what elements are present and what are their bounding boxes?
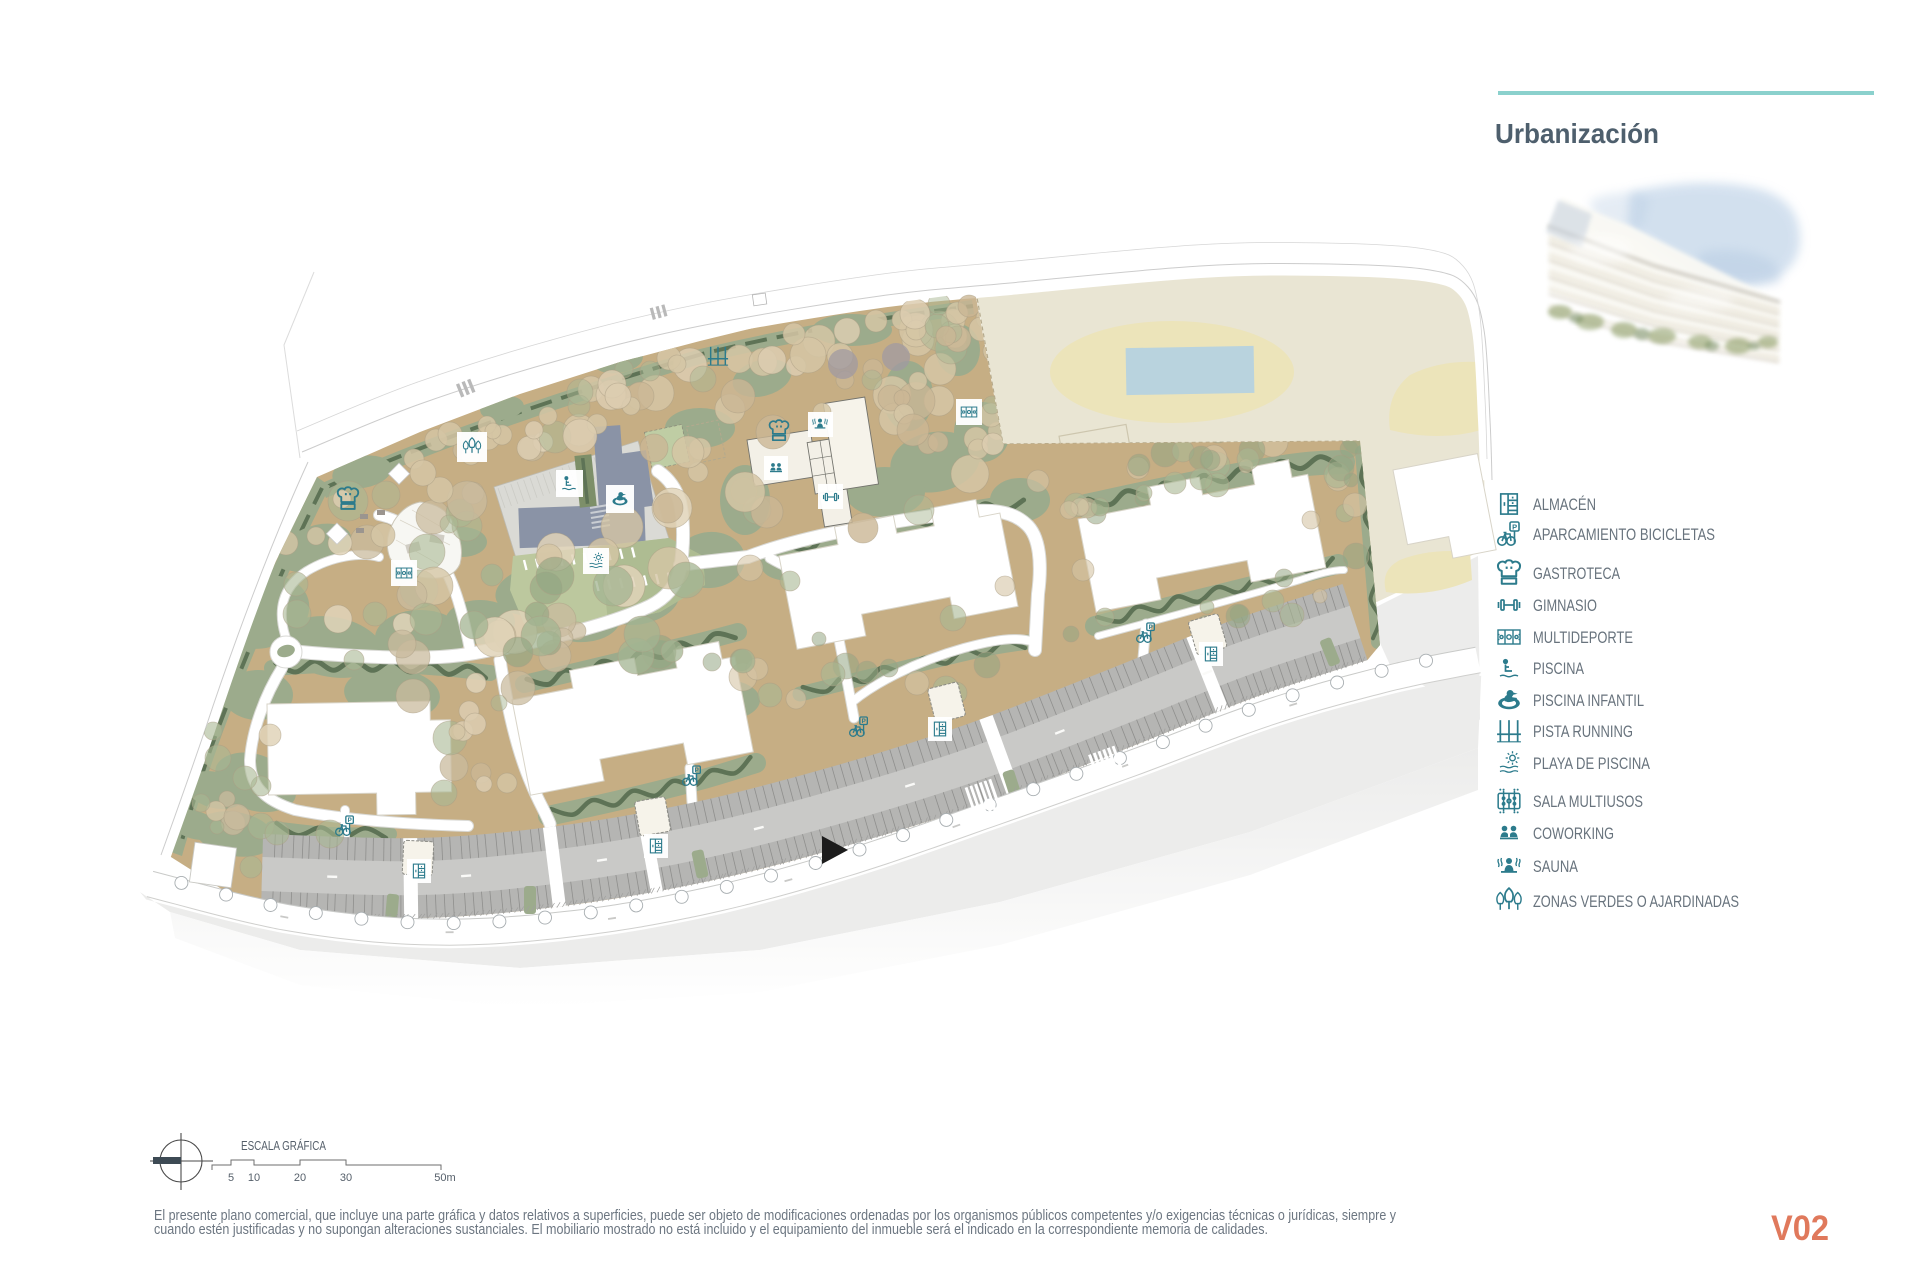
- svg-text:COWORKING: COWORKING: [1533, 824, 1614, 843]
- svg-text:V02: V02: [1771, 1209, 1829, 1248]
- svg-text:SAUNA: SAUNA: [1533, 857, 1579, 876]
- svg-text:5: 5: [228, 1172, 234, 1184]
- svg-text:GASTROTECA: GASTROTECA: [1533, 564, 1620, 583]
- svg-text:PISCINA INFANTIL: PISCINA INFANTIL: [1533, 691, 1644, 710]
- svg-text:PLAYA DE PISCINA: PLAYA DE PISCINA: [1533, 754, 1650, 773]
- svg-text:P: P: [1512, 522, 1517, 531]
- svg-text:ALMACÉN: ALMACÉN: [1533, 495, 1596, 514]
- svg-text:30: 30: [340, 1172, 352, 1184]
- svg-text:ESCALA GRÁFICA: ESCALA GRÁFICA: [241, 1138, 326, 1153]
- svg-text:P: P: [1149, 624, 1153, 631]
- svg-text:GIMNASIO: GIMNASIO: [1533, 596, 1597, 615]
- svg-text:10: 10: [248, 1172, 260, 1184]
- svg-text:cuando estén justificadas y no: cuando estén justificadas y no supongan …: [154, 1222, 1268, 1238]
- svg-text:20: 20: [294, 1172, 306, 1184]
- svg-text:ZONAS VERDES O AJARDINADAS: ZONAS VERDES O AJARDINADAS: [1533, 892, 1739, 911]
- svg-text:P: P: [695, 767, 699, 774]
- svg-text:Urbanización: Urbanización: [1495, 118, 1659, 149]
- svg-text:APARCAMIENTO BICICLETAS: APARCAMIENTO BICICLETAS: [1533, 525, 1715, 544]
- svg-text:SALA MULTIUSOS: SALA MULTIUSOS: [1533, 792, 1643, 811]
- svg-text:50m: 50m: [434, 1172, 455, 1184]
- svg-text:PISCINA: PISCINA: [1533, 659, 1584, 678]
- svg-text:P: P: [348, 817, 352, 824]
- svg-text:PISTA RUNNING: PISTA RUNNING: [1533, 722, 1633, 741]
- svg-text:MULTIDEPORTE: MULTIDEPORTE: [1533, 628, 1633, 647]
- svg-text:P: P: [862, 718, 866, 725]
